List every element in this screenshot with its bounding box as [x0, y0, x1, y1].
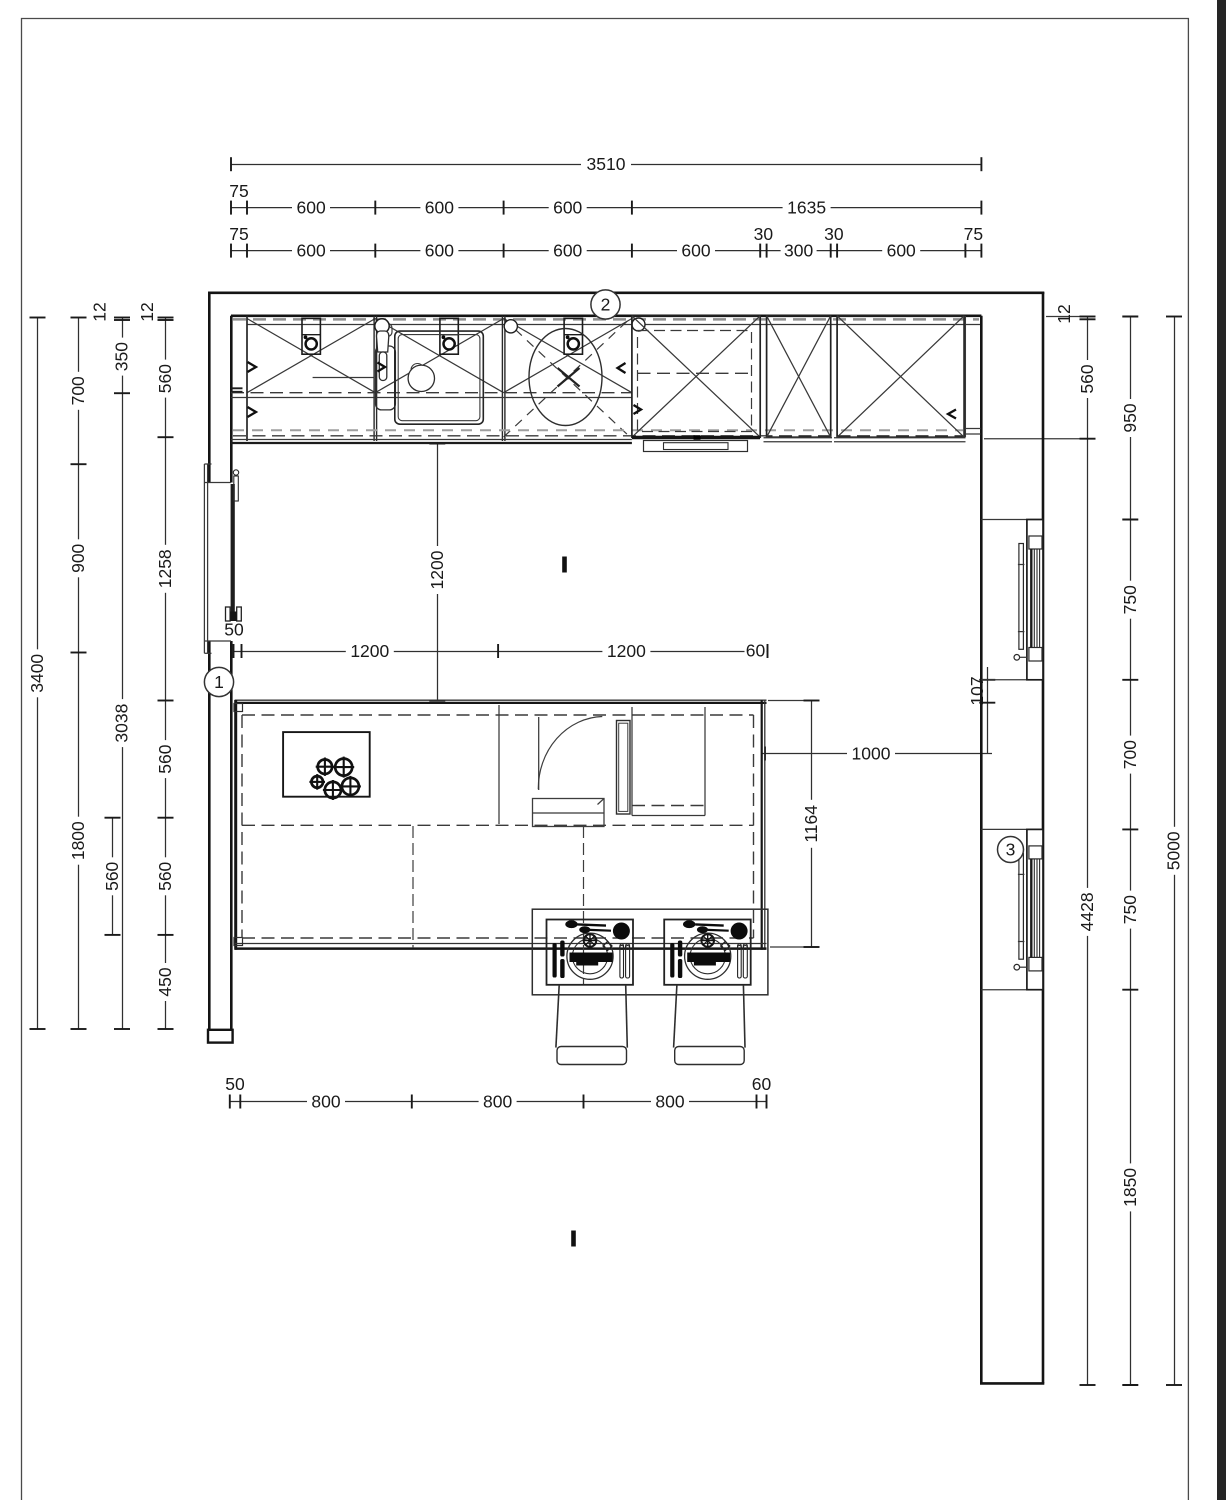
svg-text:3510: 3510 [587, 154, 626, 174]
svg-text:750: 750 [1120, 585, 1140, 614]
svg-text:350: 350 [112, 342, 132, 371]
svg-text:900: 900 [68, 543, 88, 572]
svg-text:30: 30 [824, 224, 844, 244]
svg-text:50: 50 [224, 620, 244, 640]
svg-text:60: 60 [746, 641, 766, 661]
svg-text:107: 107 [967, 676, 987, 705]
svg-text:560: 560 [155, 364, 175, 393]
svg-text:1800: 1800 [68, 821, 88, 860]
svg-text:600: 600 [681, 241, 710, 261]
svg-text:600: 600 [296, 241, 325, 261]
svg-text:1000: 1000 [852, 744, 891, 764]
svg-text:50: 50 [225, 1074, 245, 1094]
svg-text:30: 30 [754, 224, 774, 244]
svg-text:560: 560 [102, 861, 122, 890]
svg-text:1258: 1258 [155, 549, 175, 588]
svg-text:800: 800 [655, 1092, 684, 1112]
svg-text:3: 3 [1006, 840, 1016, 860]
svg-text:600: 600 [553, 241, 582, 261]
svg-text:800: 800 [311, 1092, 340, 1112]
svg-text:600: 600 [553, 198, 582, 218]
svg-text:600: 600 [887, 241, 916, 261]
svg-text:3038: 3038 [112, 704, 132, 743]
svg-text:600: 600 [425, 198, 454, 218]
svg-text:3400: 3400 [27, 654, 47, 693]
svg-text:300: 300 [784, 241, 813, 261]
svg-text:75: 75 [229, 224, 248, 244]
svg-text:950: 950 [1120, 403, 1140, 432]
svg-text:1850: 1850 [1120, 1168, 1140, 1207]
svg-text:1635: 1635 [787, 198, 826, 218]
svg-text:1: 1 [214, 672, 224, 692]
svg-text:560: 560 [155, 861, 175, 890]
svg-text:1200: 1200 [427, 550, 447, 589]
svg-text:12: 12 [1054, 304, 1074, 323]
svg-text:750: 750 [1120, 895, 1140, 924]
svg-text:560: 560 [1077, 364, 1097, 393]
svg-text:4428: 4428 [1077, 892, 1097, 931]
svg-text:75: 75 [229, 181, 248, 201]
svg-text:560: 560 [155, 744, 175, 773]
svg-text:800: 800 [483, 1092, 512, 1112]
svg-text:700: 700 [68, 376, 88, 405]
svg-text:450: 450 [155, 967, 175, 996]
svg-text:1200: 1200 [350, 641, 389, 661]
svg-text:600: 600 [296, 198, 325, 218]
svg-text:1164: 1164 [801, 805, 821, 843]
svg-text:600: 600 [425, 241, 454, 261]
svg-text:700: 700 [1120, 740, 1140, 769]
svg-text:75: 75 [964, 224, 983, 244]
svg-text:5000: 5000 [1164, 831, 1184, 870]
svg-text:12: 12 [90, 302, 110, 321]
svg-text:1200: 1200 [607, 641, 646, 661]
svg-text:60: 60 [752, 1074, 772, 1094]
svg-text:2: 2 [601, 295, 611, 315]
svg-text:12: 12 [137, 302, 157, 321]
